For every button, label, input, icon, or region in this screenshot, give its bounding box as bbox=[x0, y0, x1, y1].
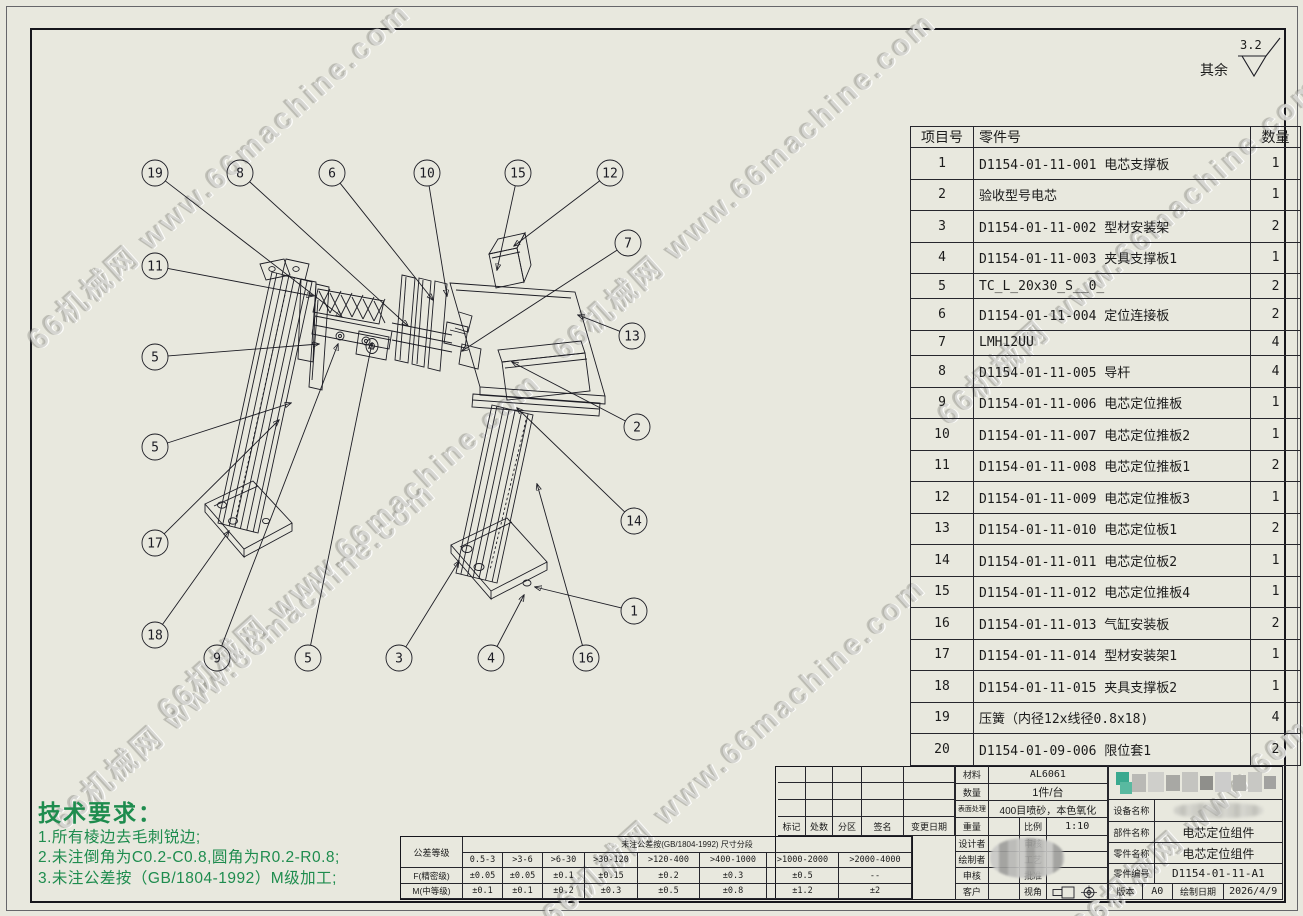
scale-label: 比例 bbox=[1020, 818, 1048, 836]
revision-header-cell: 分区 bbox=[833, 817, 862, 836]
leader-line bbox=[462, 250, 617, 351]
part-number: D1154-01-09-006 限位套1 bbox=[974, 734, 1251, 766]
tolerance-cell: F(精密级) bbox=[401, 868, 463, 884]
draw-date-value: 2026/4/9 bbox=[1224, 884, 1283, 900]
revision-header-cell: 变更日期 bbox=[904, 817, 955, 836]
revision-empty-cell bbox=[904, 783, 955, 800]
leader-line bbox=[165, 181, 342, 317]
material-value: AL6061 bbox=[989, 766, 1108, 784]
parts-table-row: 18D1154-01-11-015 夹具支撑板21 bbox=[911, 671, 1301, 703]
part-qty: 2 bbox=[1251, 734, 1301, 766]
part-qty: 2 bbox=[1251, 274, 1301, 299]
part-qty: 4 bbox=[1251, 356, 1301, 388]
part-number-value: D1154-01-11-A1 bbox=[1155, 864, 1283, 884]
tech-req-title: 技术要求： bbox=[38, 794, 340, 828]
leader-lines bbox=[163, 181, 626, 647]
part-number: D1154-01-11-007 电芯定位推板2 bbox=[974, 419, 1251, 451]
left-rail bbox=[205, 259, 312, 557]
parts-table-row: 2验收型号电芯1 bbox=[911, 179, 1301, 211]
part-item-no: 12 bbox=[911, 482, 974, 514]
designer-label: 设计者 bbox=[956, 836, 989, 852]
part-item-no: 17 bbox=[911, 639, 974, 671]
parts-table-row: 17D1154-01-11-014 型材安装架11 bbox=[911, 639, 1301, 671]
revision-empty-cell bbox=[833, 766, 862, 783]
center-mechanism bbox=[298, 275, 481, 390]
part-number: D1154-01-11-003 夹具支撑板1 bbox=[974, 242, 1251, 274]
leader-line bbox=[512, 362, 625, 421]
parts-column-header: 零件号 bbox=[974, 127, 1251, 148]
assembly-name-label: 部件名称 bbox=[1109, 822, 1155, 843]
revision-empty-cell bbox=[904, 800, 955, 817]
part-item-no: 8 bbox=[911, 356, 974, 388]
tolerance-cell: >2000-4000 bbox=[839, 853, 912, 868]
finish-note-label: 其余 bbox=[1200, 60, 1228, 80]
tolerance-cell: >1000-2000 bbox=[767, 853, 839, 868]
part-name-label: 零件名称 bbox=[1109, 843, 1155, 864]
revision-empty-cell bbox=[806, 800, 833, 817]
leader-line bbox=[406, 561, 459, 647]
parts-table-row: 5TC_L_20x30_S__0_2 bbox=[911, 274, 1301, 299]
draw-date-label: 绘制日期 bbox=[1173, 884, 1225, 900]
check-label: 申核 bbox=[956, 868, 989, 884]
part-qty: 1 bbox=[1251, 671, 1301, 703]
balloon-number: 2 bbox=[633, 421, 641, 436]
part-item-no: 2 bbox=[911, 179, 974, 211]
drawing-sheet: 66机械网 www.66machine.com66机械网 www.66machi… bbox=[0, 0, 1303, 916]
part-number: D1154-01-11-008 电芯定位推板1 bbox=[974, 450, 1251, 482]
tolerance-cell: >3-6 bbox=[503, 853, 543, 868]
balloon-number: 9 bbox=[213, 652, 221, 667]
parts-table-header-row: 项目号零件号数量 bbox=[911, 127, 1301, 148]
part-number: D1154-01-11-012 电芯定位推板4 bbox=[974, 576, 1251, 608]
part-qty: 1 bbox=[1251, 419, 1301, 451]
leader-line bbox=[514, 181, 600, 246]
balloon-number: 18 bbox=[147, 629, 163, 644]
redacted-device-name bbox=[1174, 803, 1263, 818]
part-qty: 1 bbox=[1251, 387, 1301, 419]
tolerance-cell: ±1.2 bbox=[767, 884, 839, 899]
part-qty: 1 bbox=[1251, 179, 1301, 211]
tolerance-cell: ±0.1 bbox=[503, 884, 543, 899]
part-number: D1154-01-11-001 电芯支撑板 bbox=[974, 148, 1251, 180]
tolerance-cell: ±0.15 bbox=[585, 868, 638, 884]
balloon-number: 5 bbox=[151, 441, 159, 456]
balloon-number: 16 bbox=[578, 652, 594, 667]
parts-table-row: 16D1154-01-11-013 气缸安装板2 bbox=[911, 608, 1301, 640]
redacted-signature-blur bbox=[990, 838, 1064, 878]
parts-table-row: 13D1154-01-11-010 电芯定位板12 bbox=[911, 513, 1301, 545]
revision-empty-cell bbox=[833, 800, 862, 817]
tolerance-cell: ±0.05 bbox=[463, 868, 503, 884]
parts-table-row: 20D1154-01-09-006 限位套12 bbox=[911, 734, 1301, 766]
tolerance-cell: ±0.1 bbox=[543, 868, 585, 884]
parts-table-row: 14D1154-01-11-011 电芯定位板21 bbox=[911, 545, 1301, 577]
parts-table-row: 11D1154-01-11-008 电芯定位推板12 bbox=[911, 450, 1301, 482]
customer-label: 客户 bbox=[956, 884, 989, 900]
leader-line bbox=[167, 403, 291, 443]
part-number: D1154-01-11-004 定位连接板 bbox=[974, 299, 1251, 331]
parts-column-header: 数量 bbox=[1251, 127, 1301, 148]
part-qty: 2 bbox=[1251, 299, 1301, 331]
part-number: D1154-01-11-005 导杆 bbox=[974, 356, 1251, 388]
tolerance-cell: -- bbox=[839, 868, 912, 884]
revision-empty-cell bbox=[806, 783, 833, 800]
tolerance-cell: ±2 bbox=[839, 884, 912, 899]
version-value: A0 bbox=[1143, 884, 1173, 900]
leader-line bbox=[163, 531, 229, 624]
parts-table-row: 4D1154-01-11-003 夹具支撑板11 bbox=[911, 242, 1301, 274]
balloon-number: 4 bbox=[487, 652, 495, 667]
parts-table-row: 8D1154-01-11-005 导杆4 bbox=[911, 356, 1301, 388]
revision-empty-cell bbox=[778, 783, 806, 800]
customer-value bbox=[989, 884, 1020, 900]
leader-line bbox=[311, 343, 372, 645]
base-plate-and-cell bbox=[450, 283, 605, 416]
part-item-no: 10 bbox=[911, 419, 974, 451]
part-qty: 2 bbox=[1251, 513, 1301, 545]
balloon-number: 6 bbox=[328, 167, 336, 182]
balloon-number: 3 bbox=[395, 652, 403, 667]
scale-value: 1:10 bbox=[1047, 818, 1108, 836]
tolerance-cell: ±0.2 bbox=[638, 868, 700, 884]
balloon-number: 19 bbox=[147, 167, 163, 182]
part-qty: 1 bbox=[1251, 576, 1301, 608]
part-item-no: 1 bbox=[911, 148, 974, 180]
part-item-no: 16 bbox=[911, 608, 974, 640]
part-qty: 2 bbox=[1251, 450, 1301, 482]
parts-table-row: 19压簧（内径12x线径0.8x18)4 bbox=[911, 702, 1301, 734]
view-angle-label: 视角 bbox=[1020, 884, 1048, 900]
part-number: D1154-01-11-010 电芯定位板1 bbox=[974, 513, 1251, 545]
assembly-name-value: 电芯定位组件 bbox=[1155, 822, 1283, 843]
part-item-no: 18 bbox=[911, 671, 974, 703]
part-number: D1154-01-11-014 型材安装架1 bbox=[974, 639, 1251, 671]
right-rail bbox=[451, 405, 547, 599]
part-item-no: 9 bbox=[911, 387, 974, 419]
surface-treatment-value: 400目喷砂，本色氧化 bbox=[989, 801, 1108, 818]
revision-empty-cell bbox=[833, 783, 862, 800]
part-item-no: 19 bbox=[911, 702, 974, 734]
title-block-middle: 材料 AL6061 数量 1件/台 表面处理 400目喷砂，本色氧化 重量 比例… bbox=[955, 766, 1108, 900]
revision-header-cell: 签名 bbox=[862, 817, 904, 836]
tech-req-item: 2.未注倒角为C0.2-C0.8,圆角为R0.2-R0.8; bbox=[38, 848, 340, 868]
view-angle-value bbox=[1047, 884, 1108, 900]
balloon-number: 7 bbox=[624, 237, 632, 252]
tolerance-cell: >30-120 bbox=[585, 853, 638, 868]
parts-table-row: 1D1154-01-11-001 电芯支撑板1 bbox=[911, 148, 1301, 180]
part-number-label: 零件编号 bbox=[1109, 864, 1155, 884]
tech-req-item: 1.所有棱边去毛刺锐边; bbox=[38, 828, 340, 848]
third-angle-projection-icon bbox=[1051, 885, 1103, 899]
balloon-number: 8 bbox=[236, 167, 244, 182]
part-number: TC_L_20x30_S__0_ bbox=[974, 274, 1251, 299]
part-qty: 1 bbox=[1251, 482, 1301, 514]
revision-empty-cell bbox=[778, 800, 806, 817]
parts-table-row: 3D1154-01-11-002 型材安装架2 bbox=[911, 211, 1301, 243]
parts-table-row: 15D1154-01-11-012 电芯定位推板41 bbox=[911, 576, 1301, 608]
revision-empty-cell bbox=[862, 783, 904, 800]
part-number: 验收型号电芯 bbox=[974, 179, 1251, 211]
surface-treatment-label: 表面处理 bbox=[956, 801, 989, 818]
leader-line bbox=[517, 408, 625, 512]
part-number: LMH12UU bbox=[974, 330, 1251, 355]
title-block-right: 设备名称 部件名称 电芯定位组件 零件名称 电芯定位组件 零件编号 D1154-… bbox=[1108, 766, 1283, 900]
part-item-no: 14 bbox=[911, 545, 974, 577]
tolerance-cell: ±0.5 bbox=[767, 868, 839, 884]
part-qty: 2 bbox=[1251, 211, 1301, 243]
part-item-no: 15 bbox=[911, 576, 974, 608]
part-qty: 1 bbox=[1251, 242, 1301, 274]
revision-header-cell: 标记 bbox=[778, 817, 806, 836]
tolerance-table: 公差等级未注公差按(GB/1804-1992) 尺寸分段0.5-3>3-6>6-… bbox=[400, 836, 913, 900]
leader-line bbox=[497, 186, 515, 270]
balloon-number: 14 bbox=[626, 515, 642, 530]
parts-column-header: 项目号 bbox=[911, 127, 974, 148]
revision-header-cell: 处数 bbox=[806, 817, 833, 836]
weight-label: 重量 bbox=[956, 818, 989, 836]
part-qty: 4 bbox=[1251, 330, 1301, 355]
tolerance-cell: ±0.8 bbox=[700, 884, 767, 899]
part-qty: 2 bbox=[1251, 608, 1301, 640]
leader-line bbox=[497, 595, 524, 646]
part-number: D1154-01-11-006 电芯定位推板 bbox=[974, 387, 1251, 419]
tolerance-cell: ±0.5 bbox=[638, 884, 700, 899]
tolerance-cell: ±0.3 bbox=[700, 868, 767, 884]
part-number: 压簧（内径12x线径0.8x18) bbox=[974, 702, 1251, 734]
leader-line bbox=[340, 183, 433, 300]
tolerance-cell: ±0.2 bbox=[543, 884, 585, 899]
weight-value bbox=[989, 818, 1020, 836]
tolerance-cell: ±0.3 bbox=[585, 884, 638, 899]
leader-line bbox=[537, 484, 582, 645]
part-number: D1154-01-11-002 型材安装架 bbox=[974, 211, 1251, 243]
version-label: 版本 bbox=[1109, 884, 1143, 900]
tolerance-cell: M(中等级) bbox=[401, 884, 463, 899]
technical-requirements: 技术要求： 1.所有棱边去毛刺锐边;2.未注倒角为C0.2-C0.8,圆角为R0… bbox=[38, 794, 340, 889]
tolerance-cell: >120-400 bbox=[638, 853, 700, 868]
part-qty: 1 bbox=[1251, 639, 1301, 671]
tech-req-item: 3.未注公差按（GB/1804-1992）M级加工; bbox=[38, 869, 340, 889]
tolerance-cell: 0.5-3 bbox=[463, 853, 503, 868]
balloon-number: 5 bbox=[304, 652, 312, 667]
balloon-callouts: 1986101512711135251417118953416 bbox=[142, 160, 650, 671]
part-item-no: 5 bbox=[911, 274, 974, 299]
balloon-number: 12 bbox=[602, 167, 618, 182]
company-logo bbox=[1109, 766, 1283, 800]
balloon-number: 10 bbox=[419, 167, 435, 182]
parts-table-body: 1D1154-01-11-001 电芯支撑板12验收型号电芯13D1154-01… bbox=[911, 148, 1301, 766]
tolerance-cell: 公差等级 bbox=[401, 837, 463, 868]
part-item-no: 6 bbox=[911, 299, 974, 331]
part-name-value: 电芯定位组件 bbox=[1155, 843, 1283, 864]
leader-line bbox=[429, 186, 447, 296]
balloon-number: 13 bbox=[624, 330, 640, 345]
tech-req-items: 1.所有棱边去毛刺锐边;2.未注倒角为C0.2-C0.8,圆角为R0.2-R0.… bbox=[38, 828, 340, 889]
parts-table: 项目号零件号数量 1D1154-01-11-001 电芯支撑板12验收型号电芯1… bbox=[910, 126, 1283, 766]
balloon-number: 17 bbox=[147, 537, 163, 552]
part-number: D1154-01-11-011 电芯定位板2 bbox=[974, 545, 1251, 577]
parts-table-row: 12D1154-01-11-009 电芯定位推板31 bbox=[911, 482, 1301, 514]
revision-block: 标记处数分区签名变更日期 bbox=[778, 766, 955, 836]
balloon-number: 11 bbox=[147, 260, 163, 275]
surface-finish-note: 其余 3.2 bbox=[1196, 36, 1288, 94]
quantity-value: 1件/台 bbox=[989, 784, 1108, 801]
tolerance-cell: ±0.05 bbox=[503, 868, 543, 884]
device-name-label: 设备名称 bbox=[1109, 800, 1155, 822]
part-qty: 1 bbox=[1251, 148, 1301, 180]
part-item-no: 3 bbox=[911, 211, 974, 243]
quantity-label: 数量 bbox=[956, 784, 989, 801]
balloon-number: 5 bbox=[151, 351, 159, 366]
part-number: D1154-01-11-015 夹具支撑板2 bbox=[974, 671, 1251, 703]
part-item-no: 11 bbox=[911, 450, 974, 482]
revision-empty-cell bbox=[862, 766, 904, 783]
leader-line bbox=[168, 268, 313, 296]
tolerance-cell: >6-30 bbox=[543, 853, 585, 868]
top-block bbox=[489, 233, 531, 288]
parts-table-row: 6D1154-01-11-004 定位连接板2 bbox=[911, 299, 1301, 331]
balloon-number: 15 bbox=[510, 167, 526, 182]
revision-empty-cell bbox=[862, 800, 904, 817]
balloon-number: 1 bbox=[630, 605, 638, 620]
drafter-label: 绘制者 bbox=[956, 852, 989, 868]
leader-line bbox=[250, 182, 408, 326]
parts-table-row: 7LMH12UU4 bbox=[911, 330, 1301, 355]
part-item-no: 7 bbox=[911, 330, 974, 355]
company-logo-redacted-icon bbox=[1116, 770, 1276, 796]
material-label: 材料 bbox=[956, 766, 989, 784]
tolerance-cell: ±0.1 bbox=[463, 884, 503, 899]
parts-table-row: 10D1154-01-11-007 电芯定位推板21 bbox=[911, 419, 1301, 451]
part-item-no: 20 bbox=[911, 734, 974, 766]
device-name-value-redacted bbox=[1155, 800, 1283, 822]
revision-empty-cell bbox=[806, 766, 833, 783]
part-number: D1154-01-11-009 电芯定位推板3 bbox=[974, 482, 1251, 514]
part-number: D1154-01-11-013 气缸安装板 bbox=[974, 608, 1251, 640]
part-qty: 4 bbox=[1251, 702, 1301, 734]
part-qty: 1 bbox=[1251, 545, 1301, 577]
tolerance-cell: 未注公差按(GB/1804-1992) 尺寸分段 bbox=[463, 837, 912, 853]
revision-empty-cell bbox=[778, 766, 806, 783]
revision-empty-cell bbox=[904, 766, 955, 783]
tolerance-cell: >400-1000 bbox=[700, 853, 767, 868]
leader-line bbox=[535, 587, 621, 608]
part-item-no: 13 bbox=[911, 513, 974, 545]
part-item-no: 4 bbox=[911, 242, 974, 274]
parts-table-row: 9D1154-01-11-006 电芯定位推板1 bbox=[911, 387, 1301, 419]
surface-finish-icon bbox=[1232, 36, 1288, 92]
